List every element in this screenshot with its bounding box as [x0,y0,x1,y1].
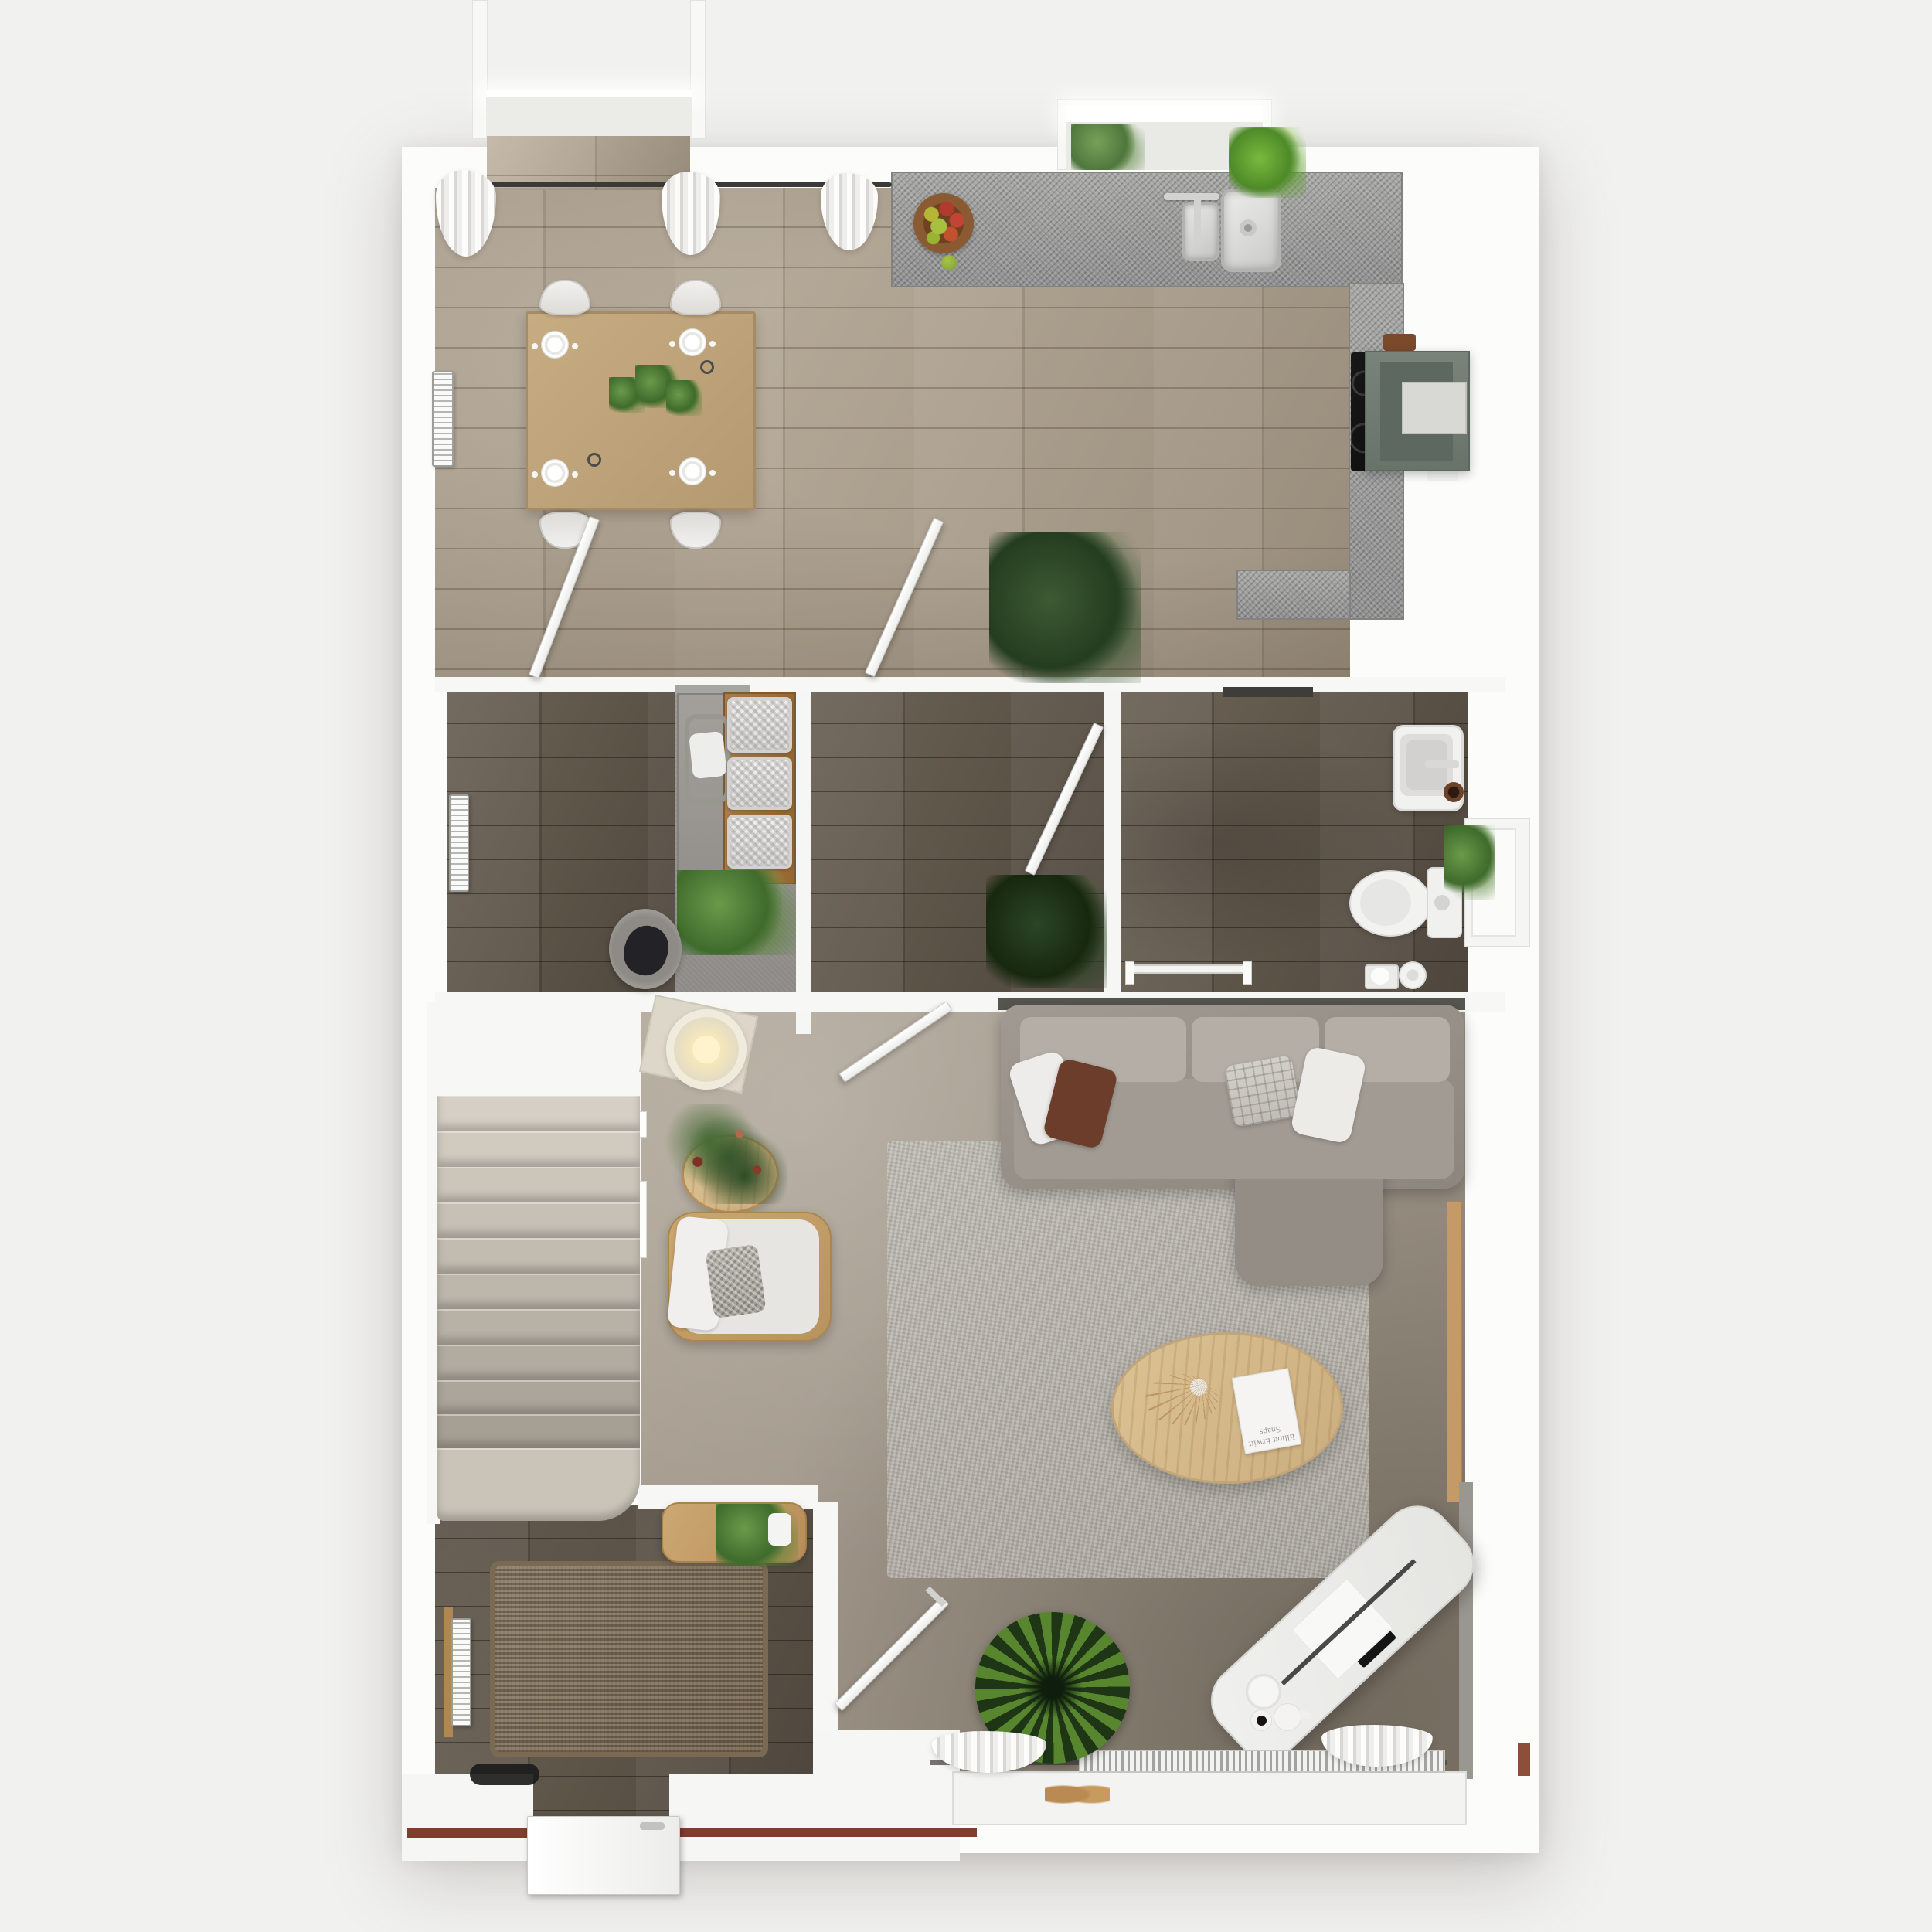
green-apple [941,255,957,270]
porch-right [669,1774,960,1861]
magazine-label: Elliott Erwitt Snaps [1246,1420,1297,1449]
dried-flowers [1145,1374,1218,1425]
towel-rail [1125,964,1252,974]
storage-basket [727,757,792,810]
toilet-bowl-inner [1360,879,1411,926]
stair-tread [437,1345,640,1380]
threshold-strip [674,1828,977,1837]
faucet-stem [1194,196,1201,247]
basin-faucet [1425,760,1459,768]
bay-pier-left [472,0,488,139]
toilet-paper-roll [1371,968,1389,985]
stair-tread [437,1309,640,1345]
bedroom-plant [986,875,1107,988]
sofa-pillow-checked [1224,1055,1302,1128]
sink-drain [1240,219,1257,236]
stair-landing [437,1448,640,1521]
floorplan-stage: Elliott Erwitt Snaps [0,0,1932,1932]
bathroom-bin [1399,961,1427,989]
napkin-ring [587,453,601,467]
storage-basket [727,697,792,753]
table-centerpiece-plant [666,380,702,416]
teapot [1274,1703,1301,1731]
wooden-birds [1045,1779,1110,1810]
towel-rail-post [1243,961,1252,985]
kitchen-window-glass [1066,105,1263,124]
fruit-bowl [913,193,974,253]
nook-plant [677,870,796,955]
entry-radiator [451,1618,471,1726]
place-setting-plate [679,328,706,356]
flower-arrangement [663,1104,787,1204]
bottom-windowsill [952,1771,1467,1825]
windowsill-herbs [1071,124,1145,170]
monstera-plant [989,532,1141,683]
desk-chair-seat [689,731,727,779]
stair-tread [437,1167,640,1202]
place-setting-plate [541,459,569,487]
dining-radiator [432,371,454,467]
stair-tread [437,1202,640,1238]
kitchen-counter-return [1236,570,1351,620]
wall-shelf-wood [1447,1201,1462,1502]
stair-tread [437,1131,640,1167]
bathroom-plant [1444,825,1495,900]
front-door-handle [640,1822,665,1830]
bathroom-cup [1444,782,1464,802]
stair-tread [437,1096,640,1131]
bay-pier-right [690,0,706,139]
sink-basin-small [1182,202,1219,261]
stair-tread [437,1238,640,1274]
floor-lamp-bulb [692,1036,720,1063]
bathroom-door-lintel [1223,687,1313,697]
stair-tread [437,1414,640,1448]
wall-stairs-top [427,1002,641,1099]
study-radiator [449,794,469,892]
storage-basket [727,815,792,869]
wall-end-marker [1518,1743,1530,1776]
napkin-ring [700,360,714,374]
wall-ledge-gray [1459,1482,1473,1779]
desk-plate [1246,1674,1281,1709]
place-setting-plate [541,331,569,359]
bay-window-sill [486,97,692,138]
utensil-holder [1383,334,1416,351]
stair-tread [437,1274,640,1309]
faucet-bar [1164,193,1219,200]
wall-nook-right [796,690,811,1034]
place-setting-plate [679,457,706,485]
porch-left [402,1774,533,1861]
stair-tread [437,1380,640,1414]
windowsill-plant [1229,127,1306,198]
wall-band-top-middle [435,677,1505,692]
coffee-table [1111,1332,1343,1484]
armchair-pillow-pattern [705,1244,767,1319]
entry-doormat [490,1561,768,1757]
extractor-hood-top [1402,382,1467,434]
console-pot [768,1513,791,1546]
shoe-tray [470,1764,539,1785]
towel-rail-post [1125,961,1134,985]
threshold-strip [407,1828,532,1838]
coffee-cup-fill [1257,1716,1267,1726]
